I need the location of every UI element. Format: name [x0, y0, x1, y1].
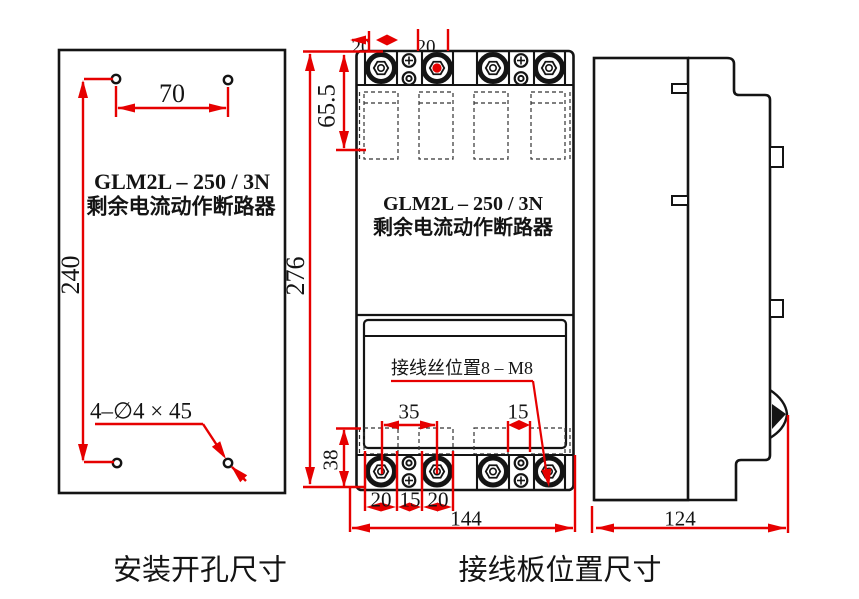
- dim-65.5-label: 65.5: [315, 84, 340, 128]
- engineering-drawing: 20 20: [0, 0, 859, 599]
- terminal-view-model-text: GLM2L – 250 / 3N: [383, 194, 543, 214]
- install-view-drawing: [59, 50, 285, 493]
- dim-cell-15-label: 15: [400, 490, 421, 511]
- terminal-view-drawing: [303, 29, 575, 533]
- terminal-view-name-text: 剩余电流动作断路器: [373, 218, 553, 238]
- dim-35-label: 35: [399, 402, 420, 423]
- dim-15-gap-label: 15: [508, 402, 529, 423]
- dim-144-label: 144: [450, 509, 482, 530]
- dim-240-label: 240: [58, 256, 84, 295]
- side-view-drawing: [592, 58, 788, 533]
- dim-276-label: 276: [283, 257, 309, 296]
- dim-cell-20-left-label: 20: [371, 490, 392, 511]
- top-clipped-dimension-lines: [350, 29, 448, 51]
- install-view-model-text: GLM2L – 250 / 3N: [94, 171, 270, 193]
- dim-124-label: 124: [664, 509, 696, 530]
- terminal-note-label: 接线丝位置8 – M8: [391, 359, 533, 377]
- hole-spec-label: 4–∅4 × 45: [90, 400, 192, 423]
- terminal-clamp-icon: [770, 390, 787, 438]
- dim-cell-20-right-label: 20: [428, 490, 449, 511]
- terminal-view-caption: 接线板位置尺寸: [458, 557, 661, 586]
- install-view-name-text: 剩余电流动作断路器: [87, 197, 276, 218]
- dim-70-label: 70: [159, 81, 185, 107]
- dim-38-label: 38: [321, 450, 342, 471]
- install-view-caption: 安装开孔尺寸: [113, 557, 287, 586]
